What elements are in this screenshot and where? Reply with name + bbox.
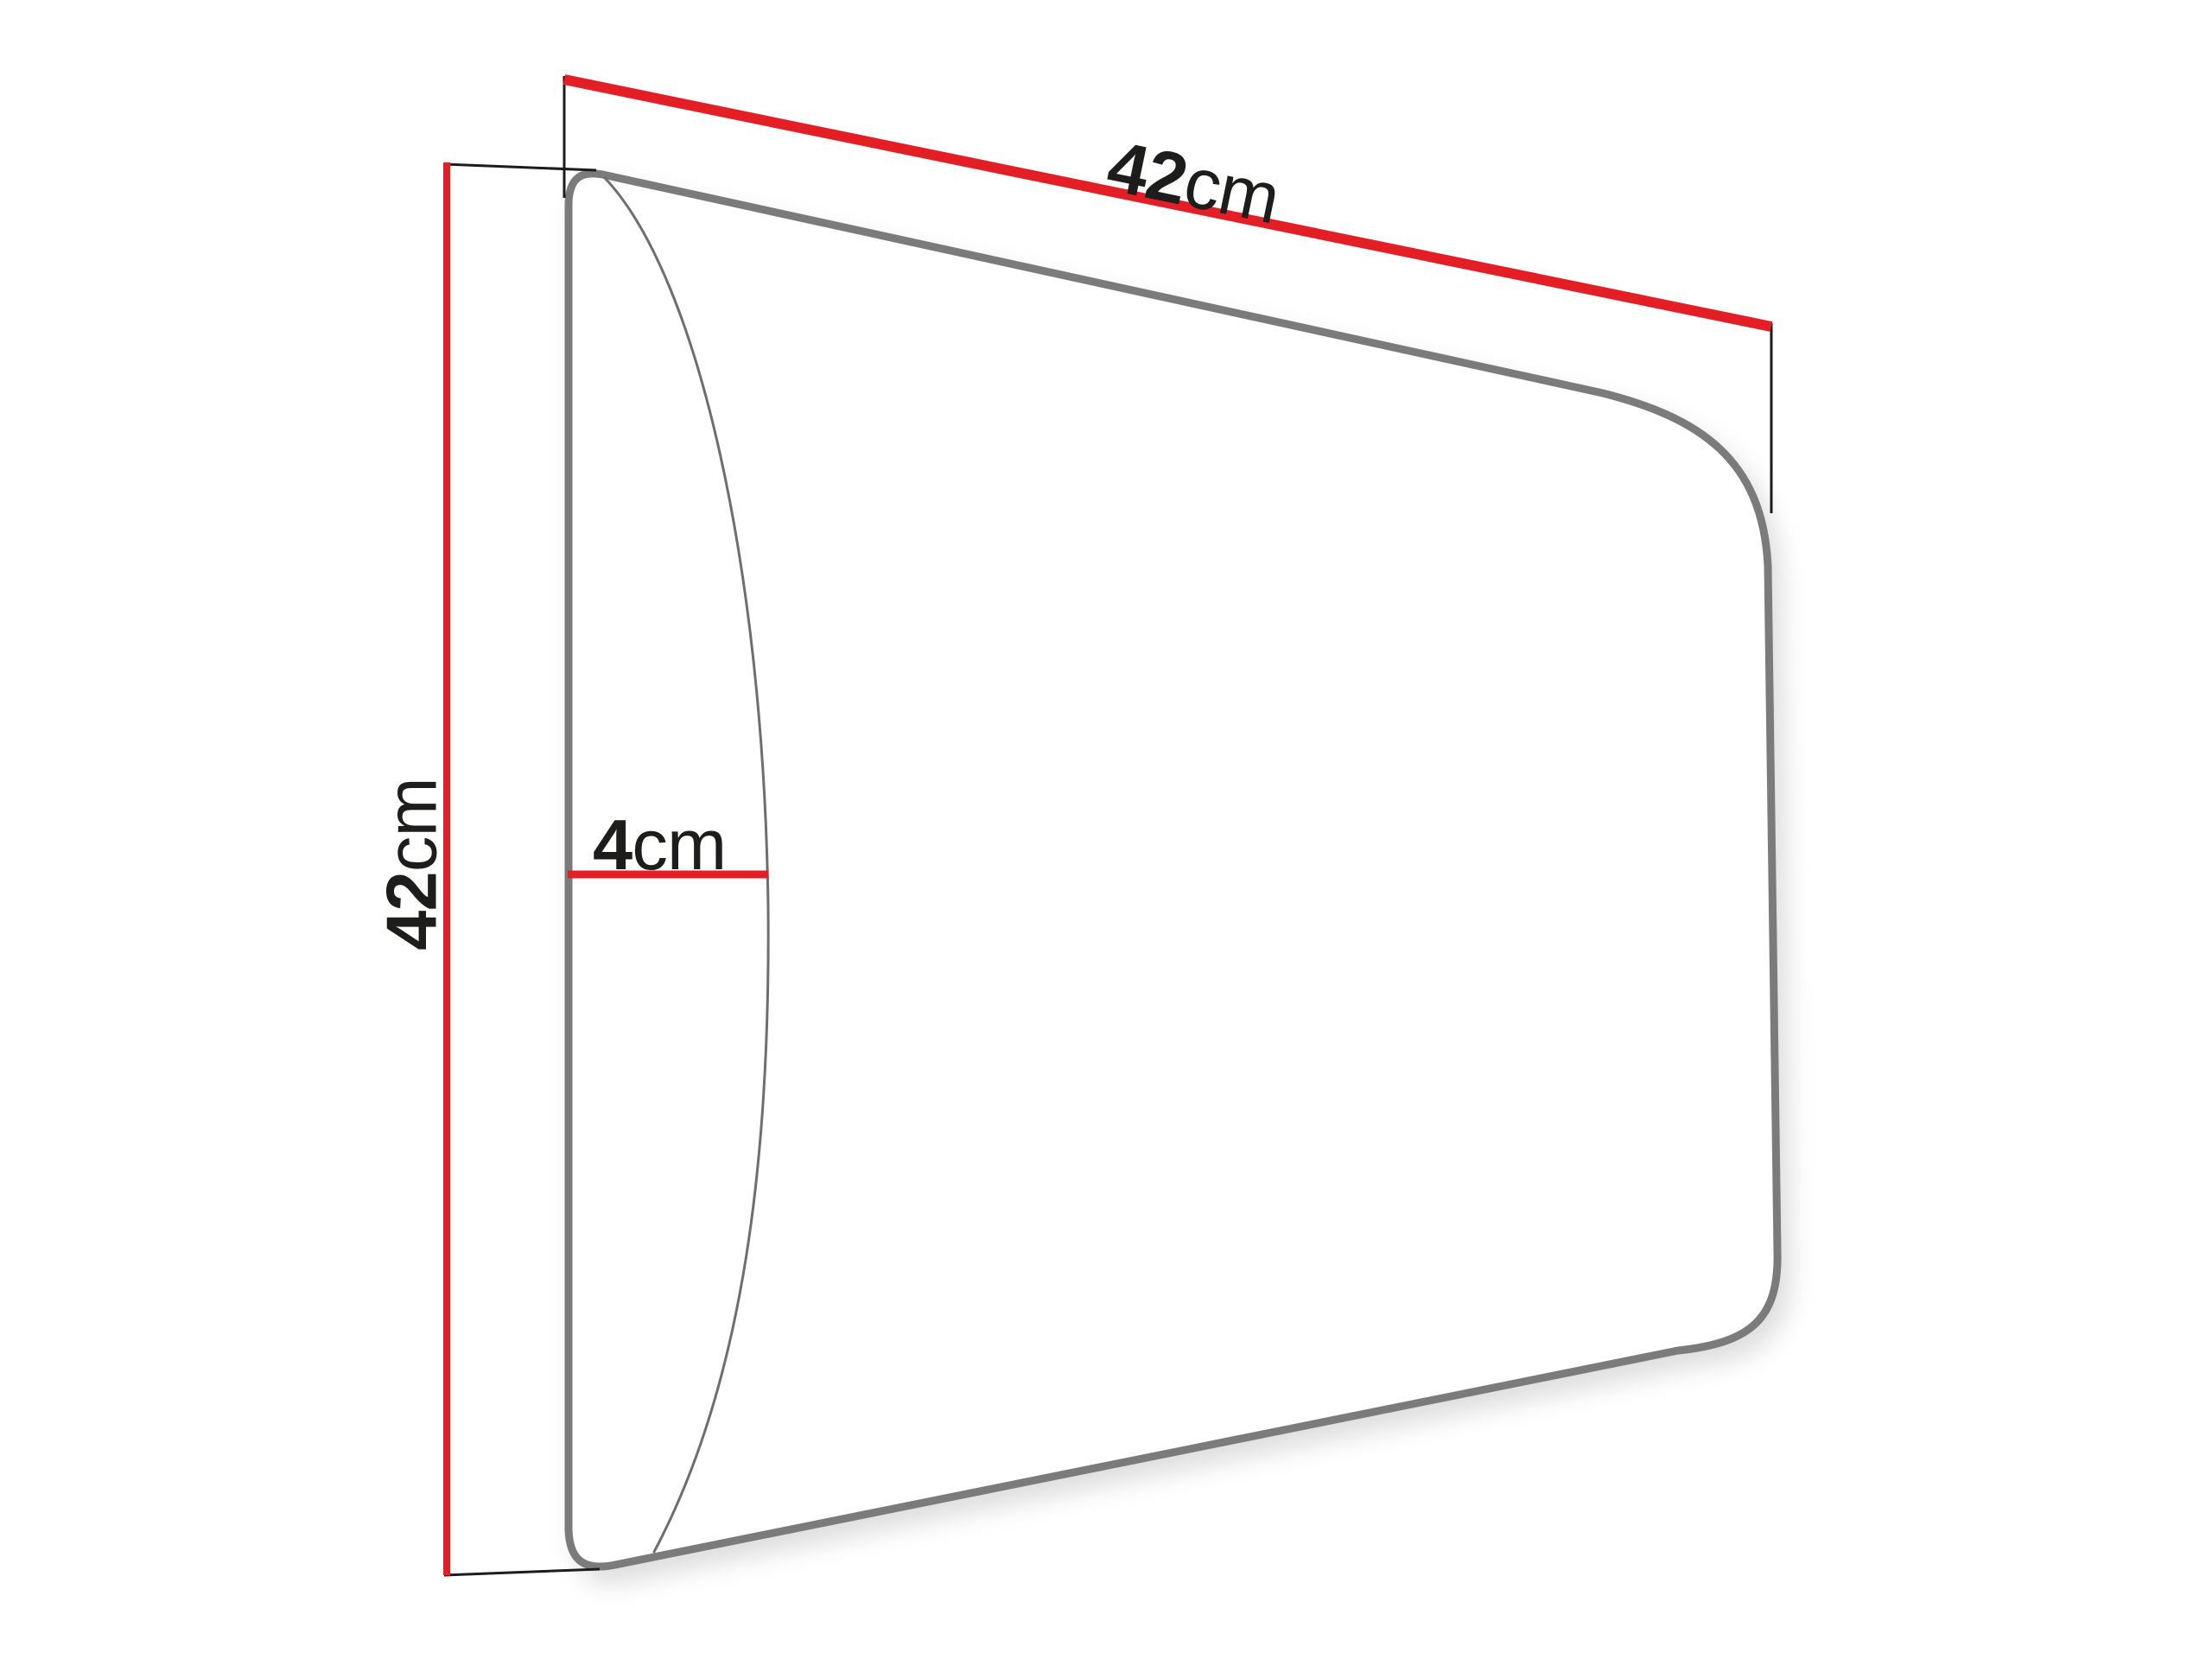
dimension-diagram: 42cm 42cm 4cm (0, 0, 2212, 1659)
panel-body (569, 174, 1777, 1567)
height-unit: cm (372, 778, 452, 872)
panel-outline (569, 174, 1777, 1567)
depth-dimension-label: 4cm (593, 809, 726, 880)
height-value: 42 (372, 872, 452, 950)
height-dimension-label: 42cm (376, 778, 448, 950)
depth-unit: cm (632, 804, 726, 885)
depth-value: 4 (593, 804, 632, 885)
panel-drawing (0, 0, 2212, 1659)
extension-line-left-lower-horizontal (444, 1569, 600, 1575)
extension-line-left-upper-horizontal (444, 164, 596, 170)
